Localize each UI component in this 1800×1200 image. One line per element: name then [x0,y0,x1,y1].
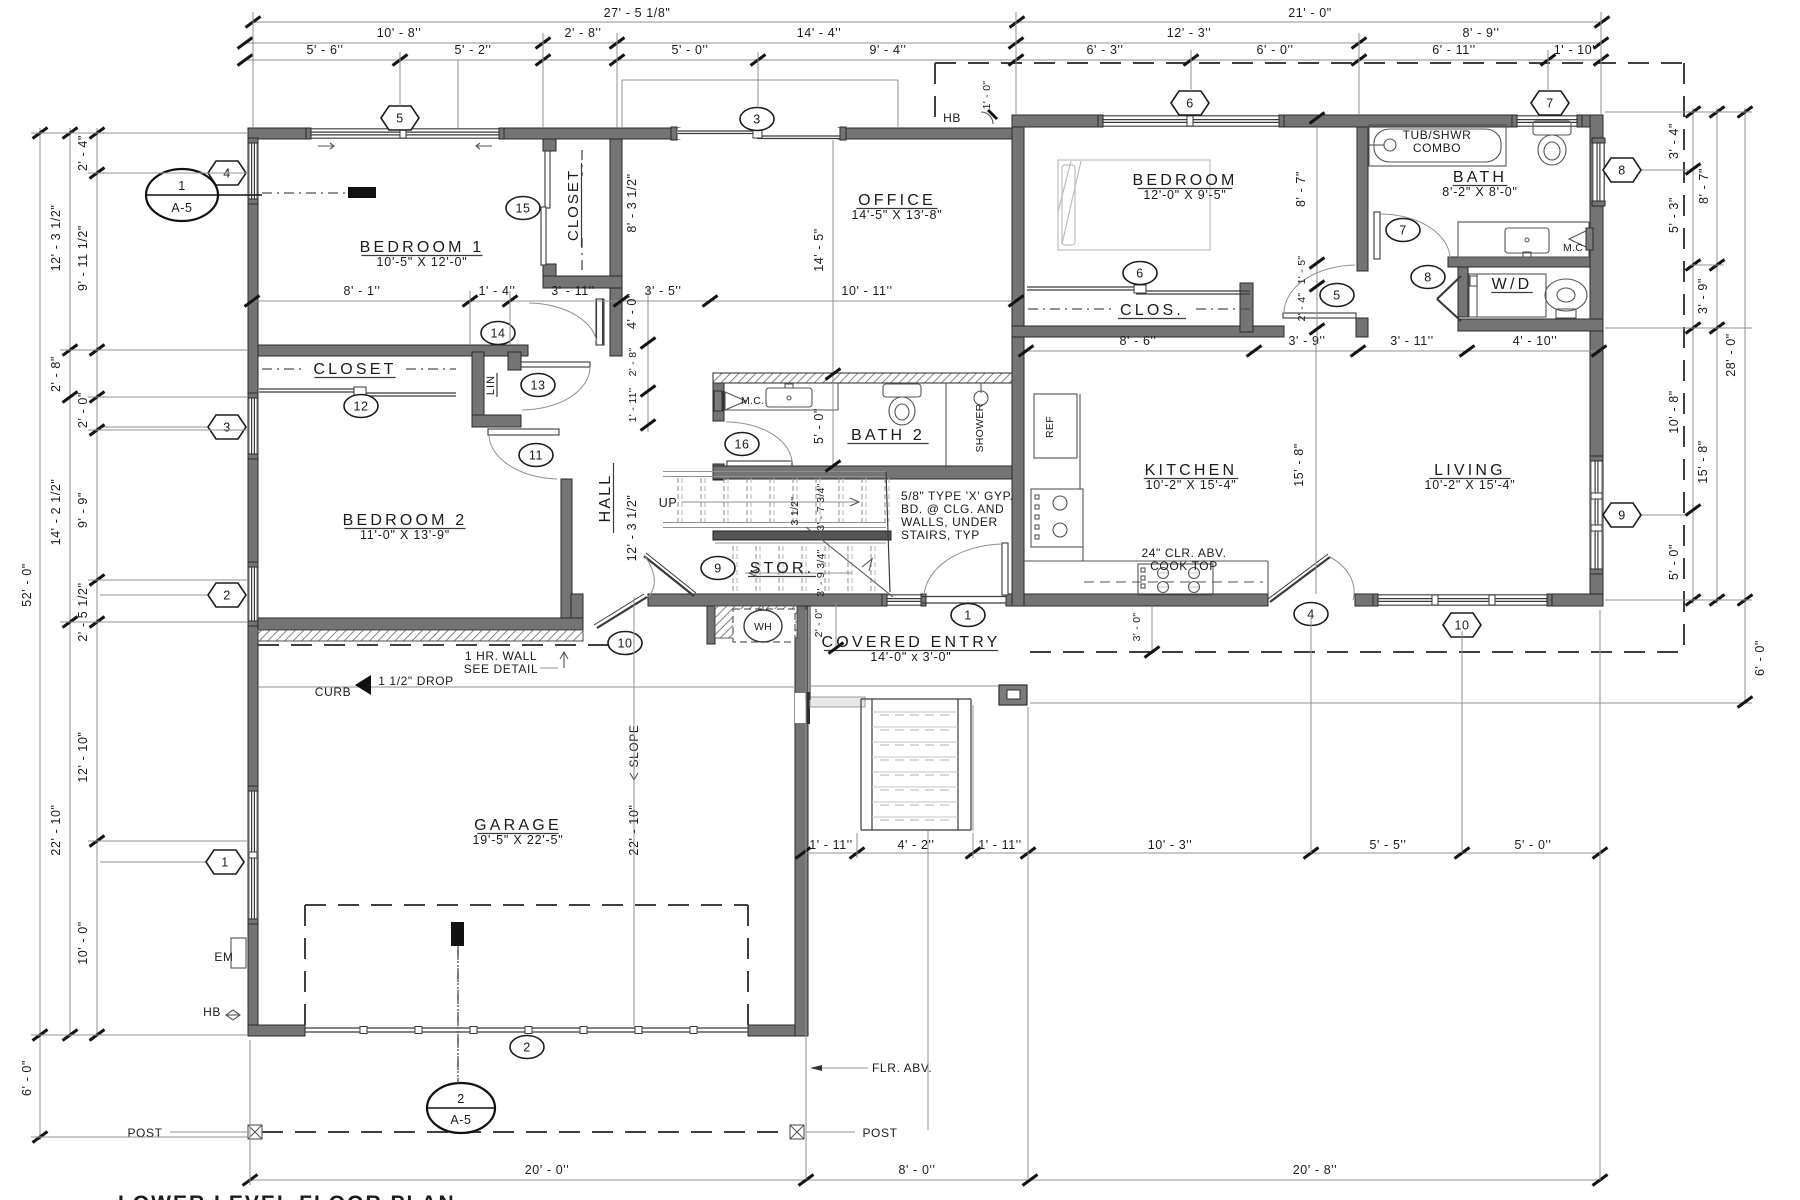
svg-text:12' - 10": 12' - 10" [76,731,90,782]
svg-text:M.C: M.C [1563,242,1583,254]
svg-text:2: 2 [457,1092,465,1106]
svg-text:12' - 3 1/2": 12' - 3 1/2" [49,205,63,272]
svg-text:12' - 3 1/2": 12' - 3 1/2" [625,495,639,562]
svg-text:9' - 9": 9' - 9" [76,492,90,528]
svg-text:A-5: A-5 [450,1113,471,1127]
svg-text:16: 16 [734,438,749,452]
svg-text:4' - 0": 4' - 0" [625,293,639,329]
svg-text:27' - 5 1/8": 27' - 5 1/8" [604,6,671,20]
svg-text:OFFICE: OFFICE [858,192,936,209]
svg-text:4' - 10'': 4' - 10'' [1513,334,1558,348]
svg-text:LOWER LEVEL FLOOR PLAN: LOWER LEVEL FLOOR PLAN [118,1192,456,1200]
svg-text:2: 2 [223,589,231,603]
svg-text:12'-0" X 9'-5": 12'-0" X 9'-5" [1143,188,1226,202]
svg-text:6' - 11'': 6' - 11'' [1432,43,1476,57]
svg-text:10: 10 [617,637,632,651]
svg-text:BEDROOM 1: BEDROOM 1 [360,239,485,256]
svg-text:3' - 0": 3' - 0" [1131,613,1143,642]
svg-text:1' - 0": 1' - 0" [981,81,993,110]
svg-text:10' - 0": 10' - 0" [76,921,90,965]
svg-text:22' - 10": 22' - 10" [49,804,63,855]
svg-text:3 1/2": 3 1/2" [789,497,801,526]
svg-text:8' - 0'': 8' - 0'' [899,1163,936,1177]
svg-text:7: 7 [1399,224,1407,238]
svg-text:9' - 11 1/2": 9' - 11 1/2" [76,225,90,291]
svg-text:9: 9 [714,562,722,576]
svg-text:2' - 8": 2' - 8" [49,356,63,392]
svg-text:3' - 7 3/4": 3' - 7 3/4" [815,483,827,531]
svg-text:KITCHEN: KITCHEN [1145,462,1238,479]
svg-text:5' - 3": 5' - 3" [1667,197,1681,233]
svg-text:POST: POST [862,1126,897,1140]
svg-text:10'-2" X 15'-4": 10'-2" X 15'-4" [1425,478,1516,492]
svg-text:8' - 7": 8' - 7" [1697,168,1711,204]
svg-text:BATH: BATH [1453,169,1507,186]
svg-text:13: 13 [530,379,545,393]
svg-text:6: 6 [1136,267,1144,281]
svg-text:4' - 2'': 4' - 2'' [898,838,935,852]
svg-text:CURB: CURB [315,685,351,699]
svg-text:8: 8 [1618,164,1626,178]
svg-text:LIVING: LIVING [1434,462,1506,479]
svg-text:14: 14 [490,327,505,341]
svg-text:1' - 5": 1' - 5" [1296,256,1308,285]
svg-text:10' - 8'': 10' - 8'' [377,26,422,40]
svg-text:COOK TOP: COOK TOP [1150,559,1218,573]
svg-text:1: 1 [221,856,229,870]
svg-text:19'-5" X 22'-5": 19'-5" X 22'-5" [473,833,564,847]
svg-text:2' - 0": 2' - 0" [813,609,825,638]
svg-text:5' - 5'': 5' - 5'' [1370,838,1407,852]
svg-text:10'-5" X 12'-0": 10'-5" X 12'-0" [377,255,468,269]
svg-text:HB: HB [203,1005,221,1019]
svg-text:9' - 4'': 9' - 4'' [870,43,907,57]
svg-text:POST: POST [127,1126,162,1140]
svg-text:HALL: HALL [597,474,614,523]
svg-text:SEE DETAIL: SEE DETAIL [464,662,538,676]
svg-text:A-5: A-5 [171,201,192,215]
svg-text:CLOSET: CLOSET [313,361,396,378]
svg-text:20' - 8'': 20' - 8'' [1293,1163,1338,1177]
svg-text:2' - 5 1/2": 2' - 5 1/2" [76,582,90,641]
svg-text:5' - 6'': 5' - 6'' [307,43,344,57]
svg-text:5' - 2'': 5' - 2'' [455,43,492,57]
svg-text:10' - 3'': 10' - 3'' [1148,838,1193,852]
svg-text:15' - 8": 15' - 8" [1696,440,1710,484]
svg-text:FLR. ABV.: FLR. ABV. [872,1061,932,1075]
svg-text:1' - 11'': 1' - 11'' [809,838,853,852]
svg-text:3' - 9 3/4": 3' - 9 3/4" [815,549,827,597]
svg-text:WALLS, UNDER: WALLS, UNDER [901,515,998,529]
svg-text:14' - 2 1/2": 14' - 2 1/2" [49,479,63,546]
svg-text:BEDROOM: BEDROOM [1132,172,1237,189]
svg-text:5' - 0'': 5' - 0'' [672,43,709,57]
svg-text:11: 11 [529,449,543,463]
svg-text:3' - 4": 3' - 4" [1667,123,1681,159]
svg-text:1 HR. WALL: 1 HR. WALL [465,649,537,663]
svg-text:STOR.: STOR. [750,560,815,577]
svg-text:1: 1 [178,179,186,193]
svg-text:24" CLR. ABV.: 24" CLR. ABV. [1142,546,1227,560]
svg-text:2' - 8": 2' - 8" [627,348,639,377]
svg-text:22' - 10": 22' - 10" [627,804,641,855]
svg-text:9: 9 [1618,509,1626,523]
svg-text:20' - 0'': 20' - 0'' [525,1163,570,1177]
svg-text:10: 10 [1454,619,1469,633]
svg-text:3' - 5'': 3' - 5'' [645,284,682,298]
svg-text:CLOS.: CLOS. [1120,302,1184,319]
svg-text:REF: REF [1044,416,1056,438]
svg-text:6: 6 [1186,97,1194,111]
svg-text:8' - 1'': 8' - 1'' [344,284,381,298]
svg-text:6' - 3'': 6' - 3'' [1087,43,1124,57]
svg-text:GARAGE: GARAGE [474,817,562,834]
svg-text:21' - 0": 21' - 0" [1288,6,1332,20]
svg-text:3' - 9": 3' - 9" [1696,278,1710,314]
svg-text:5: 5 [1333,289,1341,303]
svg-text:6' - 0": 6' - 0" [1753,640,1767,676]
svg-text:5: 5 [396,112,404,126]
svg-text:SHOWER: SHOWER [974,403,986,452]
svg-text:5' - 0": 5' - 0" [812,408,826,444]
svg-text:2' - 4": 2' - 4" [76,135,90,171]
svg-text:TUB/SHWR: TUB/SHWR [1403,128,1472,142]
svg-text:3' - 9'': 3' - 9'' [1289,334,1326,348]
svg-text:12: 12 [353,400,368,414]
svg-text:14' - 5": 14' - 5" [812,228,826,272]
svg-text:1' - 11'': 1' - 11'' [978,838,1022,852]
svg-text:14'-5" X 13'-8": 14'-5" X 13'-8" [852,208,943,222]
svg-text:WH: WH [754,621,772,633]
svg-text:2' - 4": 2' - 4" [1296,293,1308,322]
svg-text:W/D: W/D [1492,276,1533,293]
svg-text:UP: UP [659,496,678,510]
svg-text:2' - 8'': 2' - 8'' [565,26,602,40]
svg-text:HB: HB [943,111,961,125]
svg-text:6' - 0'': 6' - 0'' [1257,43,1294,57]
svg-text:CLOSET: CLOSET [565,169,582,241]
svg-text:14'-0" x 3'-0": 14'-0" x 3'-0" [870,650,951,664]
svg-text:BEDROOM 2: BEDROOM 2 [343,512,468,529]
svg-text:1' - 10'': 1' - 10'' [1554,43,1599,57]
svg-text:BATH 2: BATH 2 [851,427,925,444]
svg-text:3' - 11'': 3' - 11'' [1390,334,1434,348]
svg-text:14' - 4'': 14' - 4'' [797,26,842,40]
svg-text:BD. @ CLG. AND: BD. @ CLG. AND [901,502,1004,516]
svg-text:15' - 8": 15' - 8" [1292,443,1306,487]
svg-text:10'-2" X 15'-4": 10'-2" X 15'-4" [1146,478,1237,492]
svg-text:LIN: LIN [485,375,497,395]
svg-text:5/8" TYPE 'X' GYP.: 5/8" TYPE 'X' GYP. [901,489,1014,503]
svg-text:STAIRS, TYP: STAIRS, TYP [901,528,980,542]
svg-text:5' - 0": 5' - 0" [1667,544,1681,580]
svg-text:2: 2 [523,1041,531,1055]
svg-text:3' - 11'': 3' - 11'' [551,284,595,298]
svg-text:8: 8 [1424,271,1432,285]
svg-text:3: 3 [753,113,761,127]
svg-text:2' - 0": 2' - 0" [76,392,90,428]
svg-text:8'-2" X 8'-0": 8'-2" X 8'-0" [1442,185,1517,199]
svg-text:52' - 0": 52' - 0" [20,563,34,607]
svg-text:COVERED ENTRY: COVERED ENTRY [821,634,1000,651]
svg-text:5' - 0'': 5' - 0'' [1515,838,1552,852]
svg-text:7: 7 [1546,97,1554,111]
svg-text:M.C.: M.C. [741,395,764,407]
svg-text:8' - 9'': 8' - 9'' [1463,26,1500,40]
svg-text:12' - 3'': 12' - 3'' [1167,26,1212,40]
svg-text:1: 1 [964,609,972,623]
svg-text:1 1/2" DROP: 1 1/2" DROP [378,674,454,688]
svg-text:10' - 11'': 10' - 11'' [841,284,892,298]
svg-text:6' - 0": 6' - 0" [20,1060,34,1096]
svg-text:8' - 3 1/2": 8' - 3 1/2" [625,173,639,232]
svg-text:1' - 11'': 1' - 11'' [627,388,639,423]
svg-text:3: 3 [223,421,231,435]
svg-text:28' - 0": 28' - 0" [1724,333,1738,377]
svg-text:15: 15 [515,202,530,216]
svg-text:8' - 7": 8' - 7" [1294,171,1308,207]
svg-text:10' - 8": 10' - 8" [1667,390,1681,434]
svg-text:COMBO: COMBO [1413,141,1461,155]
svg-text:11'-0" X 13'-9": 11'-0" X 13'-9" [360,528,450,542]
svg-text:8' - 6'': 8' - 6'' [1120,334,1157,348]
